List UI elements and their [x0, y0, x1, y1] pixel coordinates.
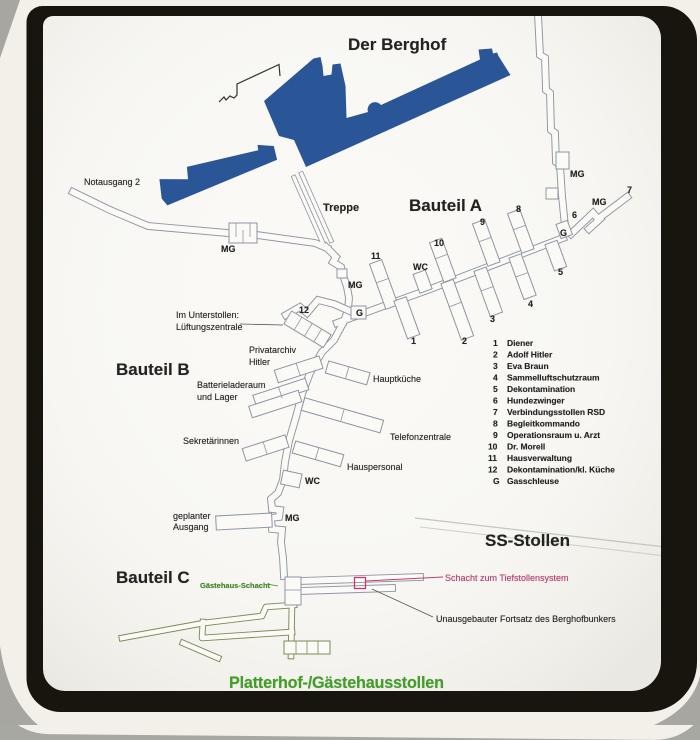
svg-text:MG: MG	[570, 169, 585, 179]
svg-text:G: G	[560, 228, 567, 238]
svg-text:Lüftungszentrale: Lüftungszentrale	[176, 322, 243, 332]
svg-text:G: G	[493, 476, 500, 486]
svg-text:Im Unterstollen:: Im Unterstollen:	[176, 310, 239, 320]
svg-text:11: 11	[371, 251, 381, 261]
svg-text:MG: MG	[285, 513, 300, 523]
svg-text:Gästehaus-Schacht: Gästehaus-Schacht	[200, 581, 271, 590]
svg-text:7: 7	[493, 407, 498, 417]
svg-text:Sammelluftschutzraum: Sammelluftschutzraum	[507, 373, 600, 383]
svg-text:und Lager: und Lager	[197, 392, 238, 402]
svg-text:Ausgang: Ausgang	[173, 522, 209, 532]
svg-text:Platterhof-/Gästehausstollen: Platterhof-/Gästehausstollen	[229, 674, 444, 692]
svg-text:9: 9	[493, 430, 498, 440]
svg-text:Dr. Morell: Dr. Morell	[507, 442, 545, 452]
svg-text:5: 5	[493, 384, 498, 394]
svg-text:5: 5	[558, 267, 563, 277]
svg-text:2: 2	[493, 350, 498, 360]
svg-text:Telefonzentrale: Telefonzentrale	[390, 432, 451, 442]
svg-text:9: 9	[480, 217, 485, 227]
svg-text:4: 4	[493, 373, 498, 383]
svg-text:WC: WC	[305, 476, 320, 486]
svg-text:geplanter: geplanter	[173, 511, 211, 521]
svg-text:Bauteil A: Bauteil A	[409, 196, 482, 215]
svg-text:Bauteil C: Bauteil C	[116, 568, 190, 587]
svg-text:6: 6	[572, 210, 577, 220]
svg-text:MG: MG	[221, 244, 236, 254]
svg-text:3: 3	[493, 361, 498, 371]
svg-text:MG: MG	[592, 197, 607, 207]
svg-text:4: 4	[528, 299, 533, 309]
svg-text:Treppe: Treppe	[323, 202, 359, 214]
svg-text:Schacht zum Tiefstollensystem: Schacht zum Tiefstollensystem	[445, 573, 569, 583]
svg-text:Begleitkommando: Begleitkommando	[507, 419, 580, 429]
svg-text:Hausverwaltung: Hausverwaltung	[507, 453, 572, 463]
svg-text:Hauspersonal: Hauspersonal	[347, 462, 403, 472]
svg-text:1: 1	[493, 338, 498, 348]
svg-text:WC: WC	[413, 262, 428, 272]
svg-text:Batterieladeraum: Batterieladeraum	[197, 380, 266, 390]
svg-text:11: 11	[488, 453, 497, 463]
svg-text:Notausgang 2: Notausgang 2	[84, 177, 140, 187]
svg-text:Hauptküche: Hauptküche	[373, 374, 421, 384]
svg-text:Operationsraum u. Arzt: Operationsraum u. Arzt	[507, 430, 600, 440]
svg-text:Verbindungsstollen RSD: Verbindungsstollen RSD	[507, 407, 605, 417]
svg-text:Der Berghof: Der Berghof	[348, 35, 447, 54]
svg-text:2: 2	[462, 336, 467, 346]
svg-text:Gasschleuse: Gasschleuse	[507, 476, 559, 486]
svg-text:Privatarchiv: Privatarchiv	[249, 345, 297, 355]
svg-text:10: 10	[434, 238, 444, 248]
svg-text:8: 8	[516, 204, 521, 214]
svg-text:12: 12	[299, 305, 309, 315]
svg-text:Diener: Diener	[507, 338, 534, 348]
svg-text:1: 1	[411, 336, 416, 346]
svg-text:8: 8	[493, 419, 498, 429]
svg-text:Adolf Hitler: Adolf Hitler	[507, 350, 553, 360]
svg-text:12: 12	[488, 465, 498, 475]
svg-text:Dekontamination/kl. Küche: Dekontamination/kl. Küche	[507, 465, 615, 475]
svg-text:10: 10	[488, 442, 498, 452]
svg-text:Eva Braun: Eva Braun	[507, 361, 549, 371]
svg-text:3: 3	[490, 314, 495, 324]
svg-text:Sekretärinnen: Sekretärinnen	[183, 436, 239, 446]
svg-text:Unausgebauter Fortsatz des Ber: Unausgebauter Fortsatz des Berghofbunker…	[436, 614, 616, 624]
svg-text:Hitler: Hitler	[249, 357, 270, 367]
svg-text:7: 7	[627, 185, 632, 195]
svg-text:6: 6	[493, 396, 498, 406]
svg-text:SS-Stollen: SS-Stollen	[485, 531, 570, 550]
svg-text:G: G	[356, 308, 363, 318]
svg-text:MG: MG	[348, 280, 363, 290]
svg-text:Bauteil B: Bauteil B	[116, 360, 190, 379]
svg-text:Dekontamination: Dekontamination	[507, 384, 575, 394]
svg-text:Hundezwinger: Hundezwinger	[507, 396, 565, 406]
